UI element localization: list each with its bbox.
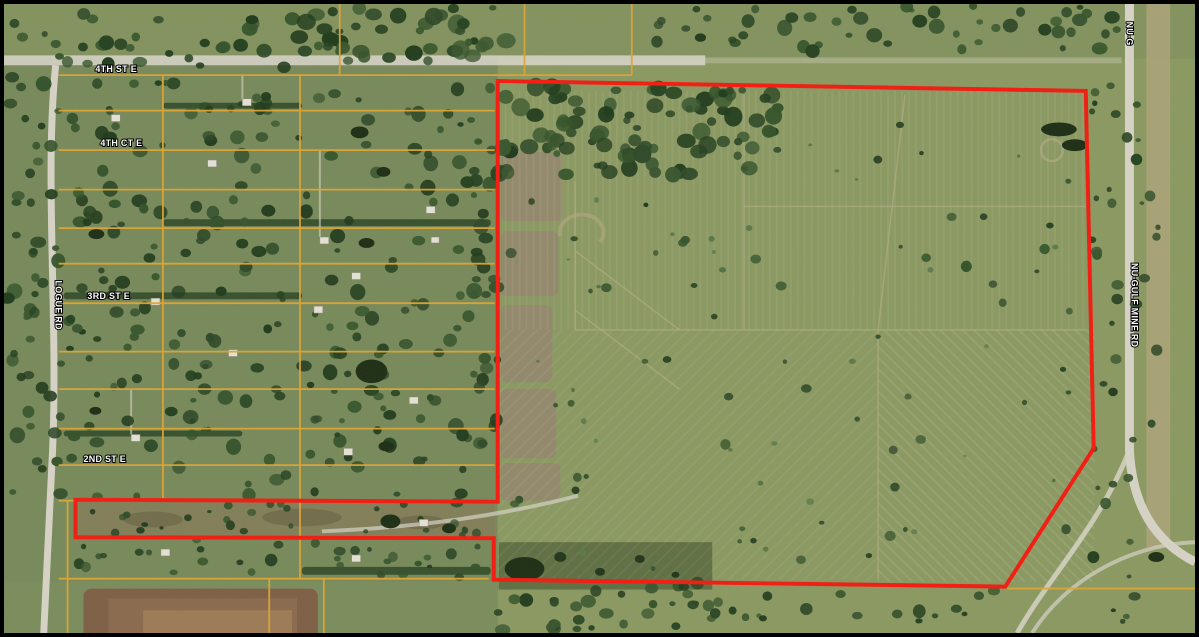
street-label-2nd-st-e: 2ND ST E [83,454,126,464]
street-label-4th-st-e: 4TH ST E [95,64,137,74]
street-label-4th-ct-e: 4TH CT E [100,138,142,148]
street-label-3rd-st-e: 3RD ST E [87,291,130,301]
satellite-imagery: 4TH ST E 4TH CT E 3RD ST E 2ND ST E LOGU… [4,4,1195,633]
street-label-logue-rd: LOGUE RD [54,281,64,331]
street-label-nu-gulf-mine-rd-partial: NU-G [1124,22,1134,46]
aerial-parcel-map: 4TH ST E 4TH CT E 3RD ST E 2ND ST E LOGU… [0,0,1199,637]
street-label-nu-gulf-mine-rd: NU-GULF MINE RD [1129,263,1139,348]
